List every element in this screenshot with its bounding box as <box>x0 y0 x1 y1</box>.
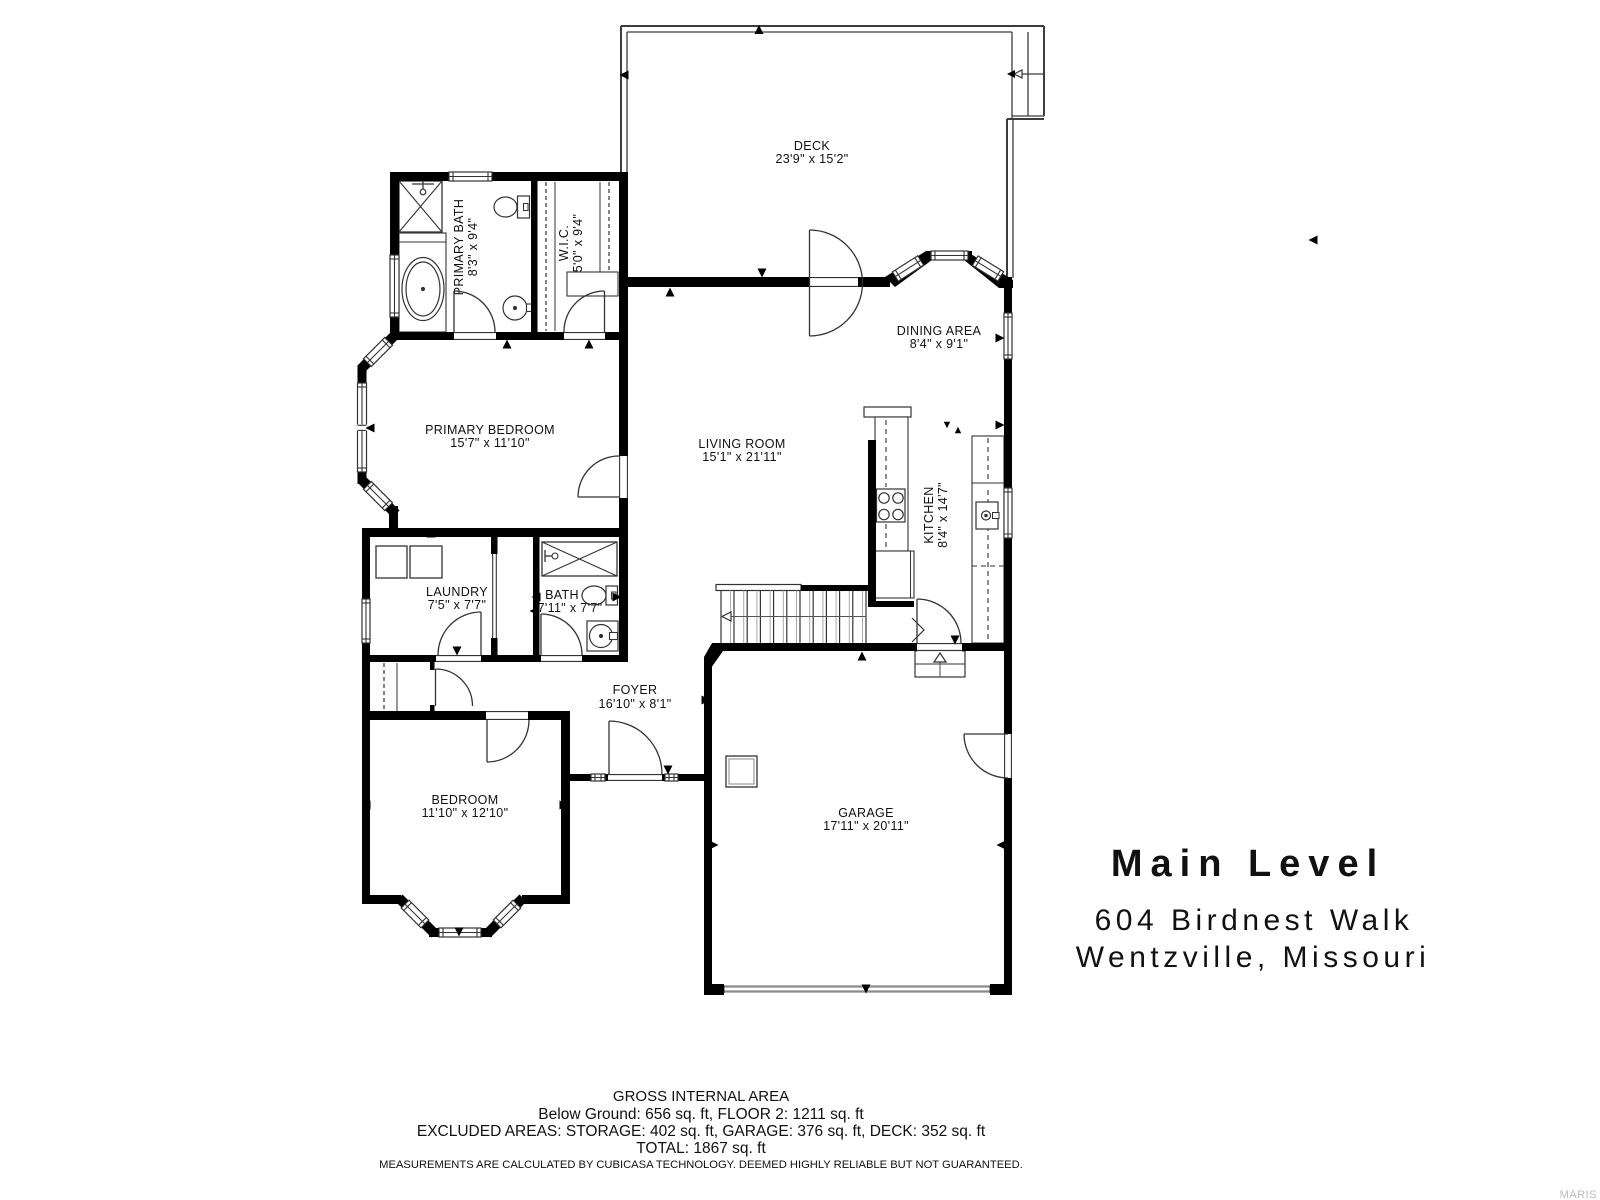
svg-text:15'7" x 11'10": 15'7" x 11'10" <box>450 436 529 450</box>
svg-text:W.I.C.: W.I.C. <box>557 225 571 261</box>
svg-text:7'5" x 7'7": 7'5" x 7'7" <box>428 598 487 612</box>
svg-text:17'11" x 20'11": 17'11" x 20'11" <box>823 819 909 833</box>
svg-text:8'4" x 9'1": 8'4" x 9'1" <box>910 337 969 351</box>
svg-text:BEDROOM: BEDROOM <box>431 793 498 807</box>
svg-text:PRIMARY BATH: PRIMARY BATH <box>452 199 466 296</box>
svg-text:MARIS: MARIS <box>1560 1189 1597 1200</box>
svg-text:LAUNDRY: LAUNDRY <box>426 585 488 599</box>
svg-text:LIVING ROOM: LIVING ROOM <box>698 437 785 451</box>
svg-text:Wentzville, Missouri: Wentzville, Missouri <box>1076 941 1431 974</box>
svg-text:Below Ground: 656 sq. ft, FLOO: Below Ground: 656 sq. ft, FLOOR 2: 1211 … <box>538 1106 864 1123</box>
svg-text:KITCHEN: KITCHEN <box>922 486 936 543</box>
svg-text:GARAGE: GARAGE <box>838 806 894 820</box>
svg-text:15'1" x 21'11": 15'1" x 21'11" <box>702 450 781 464</box>
svg-text:GROSS INTERNAL AREA: GROSS INTERNAL AREA <box>613 1088 789 1105</box>
svg-text:DINING AREA: DINING AREA <box>897 324 982 338</box>
svg-text:16'10" x 8'1": 16'10" x 8'1" <box>598 697 671 711</box>
svg-text:FOYER: FOYER <box>613 683 658 697</box>
svg-text:EXCLUDED AREAS: STORAGE: 402 s: EXCLUDED AREAS: STORAGE: 402 sq. ft, GAR… <box>417 1123 986 1140</box>
svg-text:MEASUREMENTS ARE CALCULATED BY: MEASUREMENTS ARE CALCULATED BY CUBICASA … <box>379 1159 1023 1171</box>
svg-text:PRIMARY BEDROOM: PRIMARY BEDROOM <box>425 423 555 437</box>
svg-text:DECK: DECK <box>794 139 830 153</box>
svg-text:8'3" x 9'4": 8'3" x 9'4" <box>466 218 480 277</box>
svg-text:604 Birdnest Walk: 604 Birdnest Walk <box>1095 904 1414 937</box>
svg-text:TOTAL: 1867 sq. ft: TOTAL: 1867 sq. ft <box>636 1140 766 1157</box>
svg-text:Main Level: Main Level <box>1111 843 1385 885</box>
svg-text:5'0" x 9'4": 5'0" x 9'4" <box>571 214 585 273</box>
svg-text:7'11" x 7'7": 7'11" x 7'7" <box>538 601 603 615</box>
svg-text:11'10" x 12'10": 11'10" x 12'10" <box>422 806 509 820</box>
svg-text:8'4" x 14'7": 8'4" x 14'7" <box>936 482 950 548</box>
svg-text:23'9" x 15'2": 23'9" x 15'2" <box>775 152 848 166</box>
svg-text:BATH: BATH <box>545 588 579 602</box>
